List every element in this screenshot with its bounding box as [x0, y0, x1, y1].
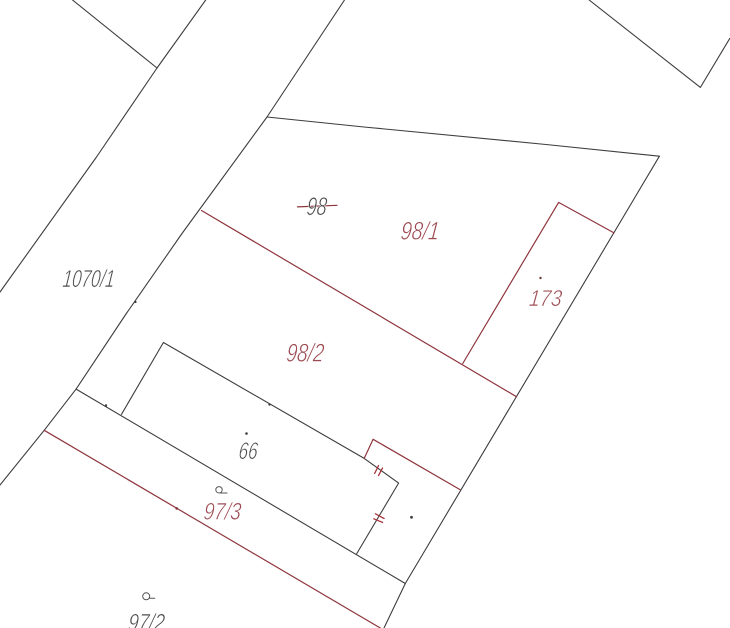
svg-text:97/3: 97/3 [202, 498, 242, 526]
svg-text:97/2: 97/2 [127, 608, 166, 628]
svg-text:1070/1: 1070/1 [61, 266, 116, 293]
svg-text:173: 173 [528, 286, 563, 312]
svg-text:66: 66 [237, 438, 259, 464]
svg-text:98/1: 98/1 [399, 216, 441, 245]
svg-text:98: 98 [305, 192, 329, 221]
svg-text:98/2: 98/2 [285, 338, 326, 367]
